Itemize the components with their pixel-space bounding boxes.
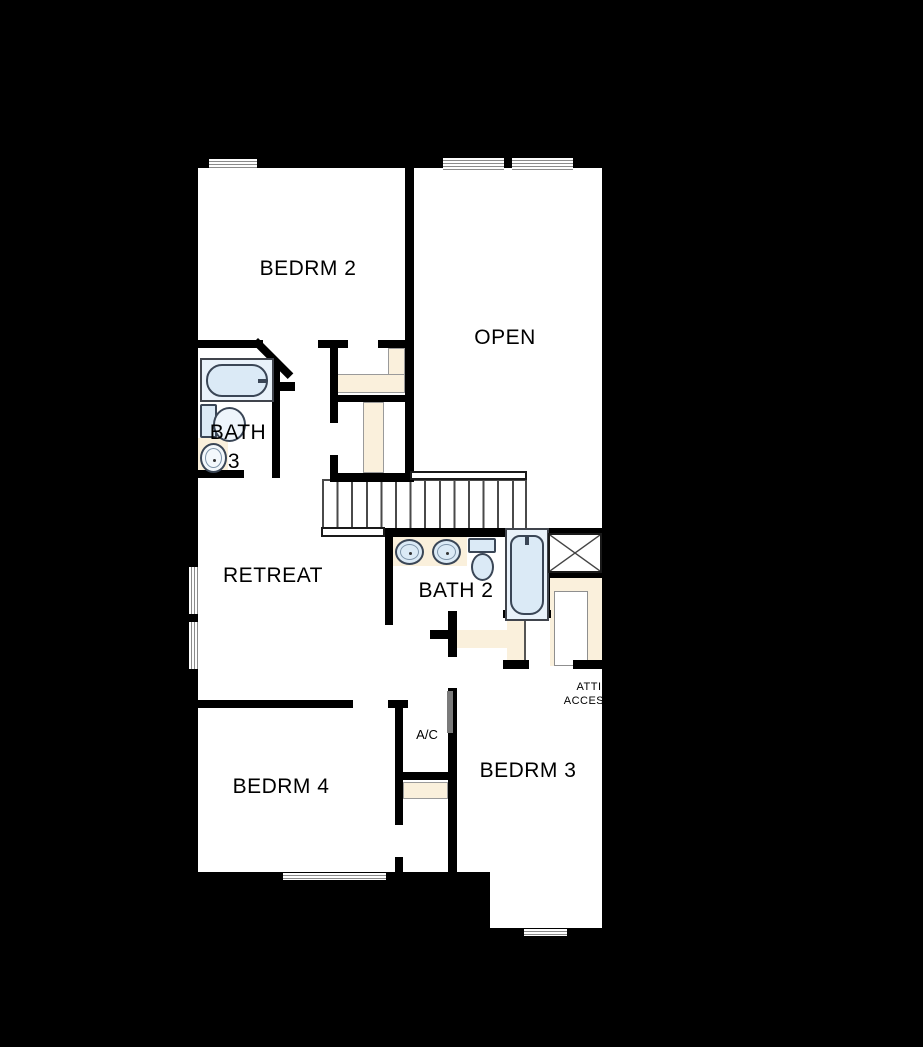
wall-bath2-left [385, 537, 393, 625]
bathtub-bath3 [206, 364, 268, 397]
wall-closet-top-right [378, 340, 408, 348]
wall-closet-middle [330, 395, 414, 402]
wall-hall-vertical [448, 611, 457, 657]
wall-retreat-bedrm4 [198, 700, 353, 708]
toilet-tank-bath2 [468, 538, 496, 553]
wall-closet-top-left [318, 340, 348, 348]
exterior-wall-right [602, 160, 610, 936]
wall-closet-bottom [330, 473, 414, 482]
room-label-bedrm4: BEDRM 4 [211, 775, 351, 799]
hall-closet-shelf [457, 630, 507, 648]
room-label-bath3-line2: 3 [224, 450, 244, 474]
room-label-bath2: BATH 2 [396, 579, 516, 603]
exterior-wall-left [190, 160, 198, 880]
room-label-bath3-line1: BATH [207, 421, 269, 445]
room-label-bedrm2: BEDRM 2 [238, 257, 378, 281]
stairs [322, 479, 527, 529]
wall-closet-left-upper [330, 348, 338, 423]
bedrm4-closet-shelf [403, 782, 448, 799]
wall-ac-bottom [395, 772, 448, 780]
bathtub-bath2 [510, 535, 544, 615]
stair-railing-top [410, 471, 527, 480]
sink-bath3 [200, 443, 227, 473]
wall-bedrm4-closet-stub [395, 857, 403, 872]
closet-shelf-horizontal [336, 374, 405, 393]
room-label-bedrm3: BEDRM 3 [458, 759, 598, 783]
wall-hall-stub [430, 630, 448, 639]
vanity-sink-2-bath2 [432, 539, 461, 565]
wall-bedrm2-open-divider [405, 168, 414, 477]
wall-closet-bottom-stub-1 [503, 660, 529, 669]
exterior-wall-step [482, 872, 490, 934]
wall-bath3-stub [280, 382, 295, 391]
window-bedrm2-top [209, 159, 257, 168]
vanity-sink-1-bath2 [395, 539, 424, 565]
closet-shelf-lower [363, 402, 384, 473]
closet-shelf-vertical [388, 348, 405, 376]
window-bedrm4-bottom [283, 873, 386, 880]
attic-hatch-x [550, 535, 600, 571]
toilet-bowl-bath2 [471, 553, 494, 581]
room-label-ac: A/C [407, 727, 447, 742]
door-leaf-bedrm3 [447, 691, 453, 733]
window-retreat-left-1 [189, 567, 198, 614]
window-bedrm3-bottom [524, 929, 567, 936]
room-label-retreat: RETREAT [203, 564, 343, 588]
wall-closet-bottom-stub-2 [573, 660, 602, 669]
floor-area-bedrm3-extension [488, 868, 602, 928]
floor-plan: BEDRM 2 OPEN BATH 3 RETREAT BATH 2 BEDRM… [0, 0, 923, 1047]
stair-railing-bottom [321, 527, 385, 537]
wall-bedrm4-closet-left [395, 780, 403, 825]
room-label-open: OPEN [445, 326, 565, 350]
window-retreat-left-2 [189, 622, 198, 669]
label-attic-access-line1: ATTIC [556, 681, 610, 693]
attic-hatch [548, 533, 602, 573]
wall-ac-left [395, 700, 403, 780]
window-open-top-2 [512, 158, 573, 170]
bedrm3-closet-interior [554, 591, 588, 666]
label-attic-access-line2: ACCESS [556, 695, 612, 707]
window-open-top-1 [443, 158, 504, 170]
